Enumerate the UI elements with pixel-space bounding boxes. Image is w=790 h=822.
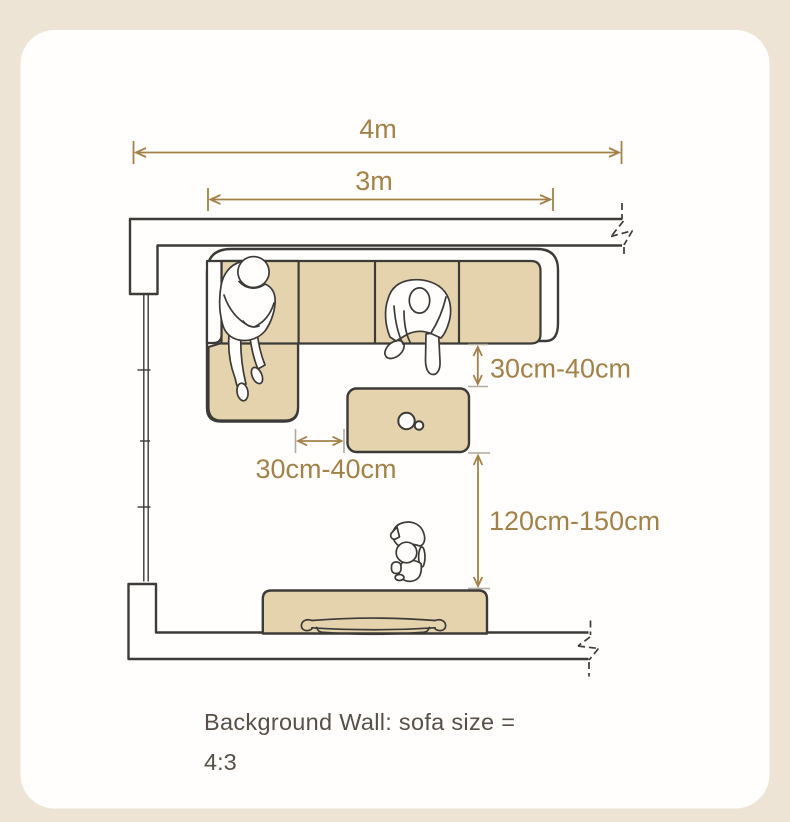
- svg-text:120cm-150cm: 120cm-150cm: [489, 506, 660, 536]
- svg-text:4m: 4m: [359, 114, 397, 144]
- svg-text:Background Wall: sofa size =: Background Wall: sofa size =: [204, 709, 515, 735]
- svg-text:30cm-40cm: 30cm-40cm: [255, 454, 396, 484]
- svg-text:4:3: 4:3: [204, 749, 237, 775]
- svg-text:30cm-40cm: 30cm-40cm: [490, 354, 631, 384]
- svg-text:3m: 3m: [355, 166, 393, 196]
